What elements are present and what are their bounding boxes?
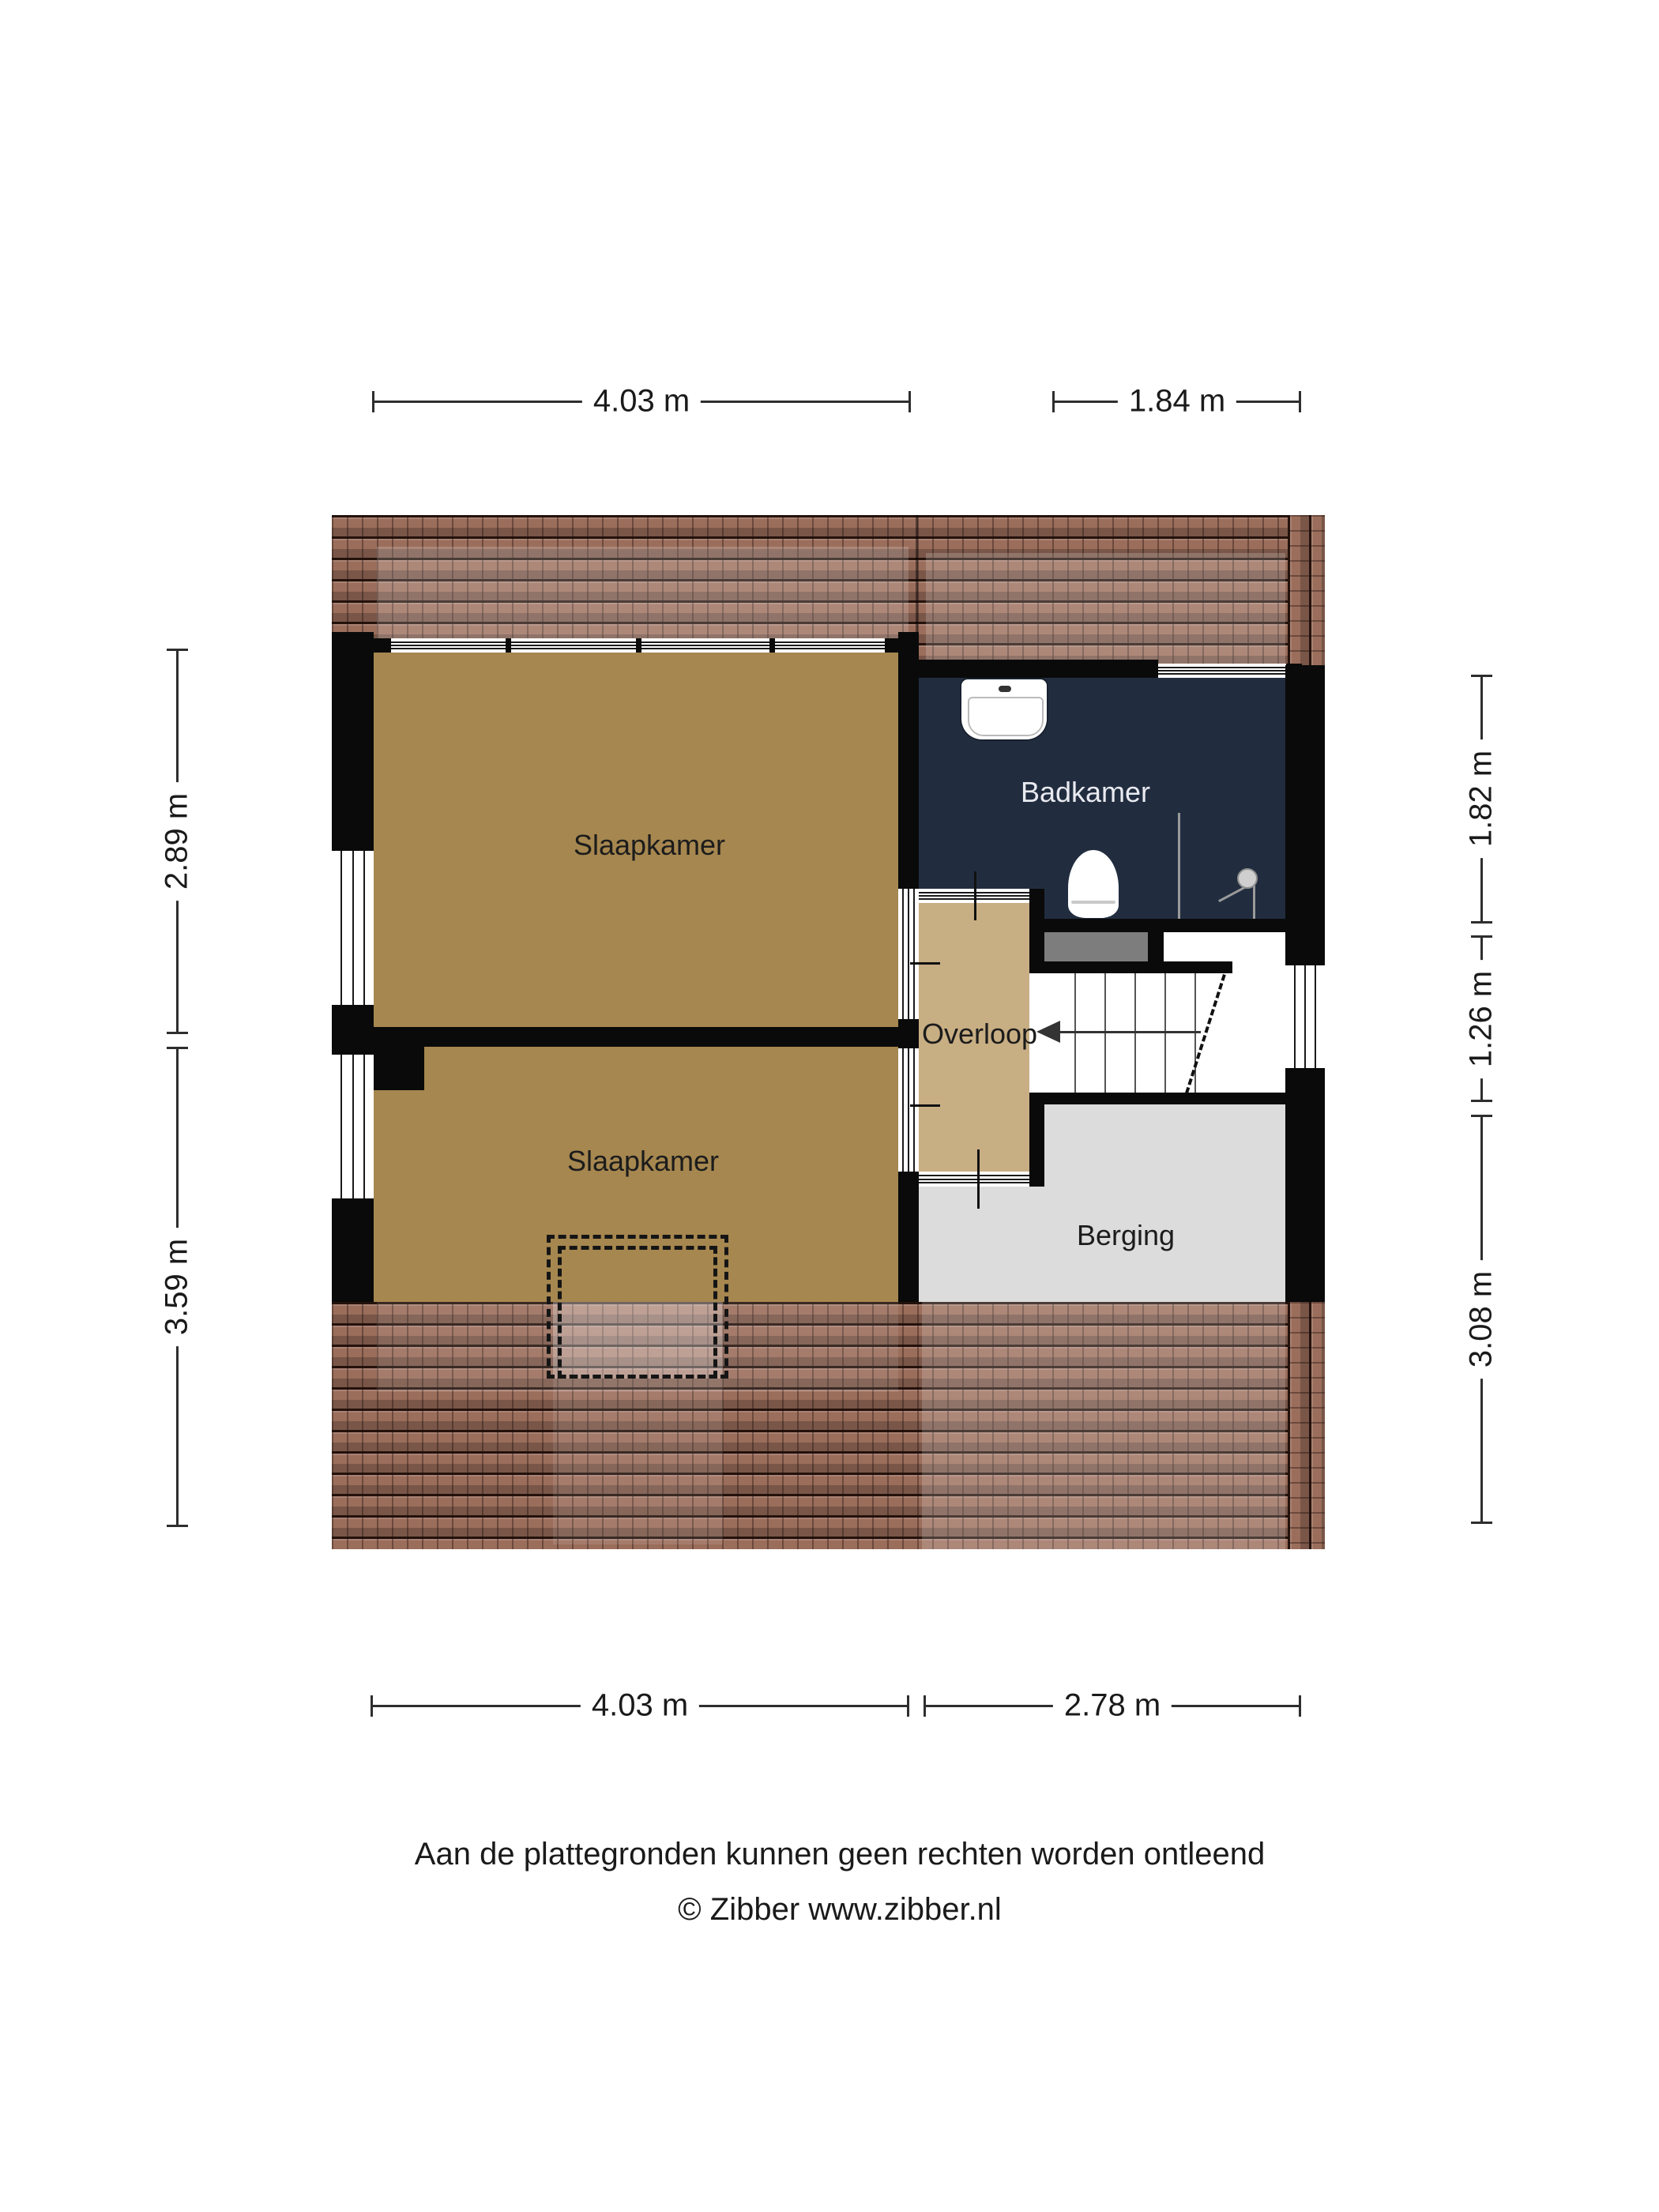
dimension-label-left-lower: 3.59 m	[160, 1228, 195, 1346]
wall-stairs-top	[1029, 961, 1232, 973]
room-berging-floor	[1044, 1104, 1285, 1302]
dim-tick	[924, 1695, 926, 1717]
dim-tick	[1471, 1100, 1492, 1102]
wall-top-left-cap	[374, 638, 391, 653]
dimension-label-top-left: 4.03 m	[582, 384, 701, 419]
dim-tick	[1299, 1695, 1301, 1717]
window-top-mullion-3	[769, 638, 775, 653]
shower-icon	[1178, 813, 1180, 919]
window-bathroom-top	[1158, 664, 1286, 678]
dimension-label-left-upper: 2.89 m	[160, 782, 195, 901]
dim-tick	[1052, 391, 1055, 412]
dimension-label-bottom-right: 2.78 m	[1053, 1688, 1172, 1724]
wall-bathroom-top	[919, 660, 1158, 678]
dim-tick	[1471, 1522, 1492, 1524]
glazed-strip-bottom-block	[898, 1172, 919, 1187]
sink-icon	[961, 679, 1047, 739]
dim-tick	[372, 391, 374, 412]
shower-stand	[1253, 885, 1255, 919]
label-overloop: Overloop	[922, 1018, 1037, 1051]
roof-overlay-top-left	[377, 547, 908, 640]
label-berging: Berging	[1077, 1219, 1175, 1252]
roof-side-strip-bottom	[1288, 1302, 1325, 1549]
window-landing-bottom	[919, 1172, 1029, 1187]
glazed-strip-junction-block	[898, 1019, 919, 1048]
dimension-label-right-3: 3.08 m	[1464, 1260, 1499, 1379]
dimension-label-top-right: 1.84 m	[1118, 384, 1236, 419]
roof-window-dashed-inner	[558, 1246, 717, 1379]
door-tick	[977, 1149, 980, 1209]
roof-overlay-roofwindow-faint	[553, 1379, 723, 1544]
wall-bedroom-bathroom	[898, 632, 919, 889]
dim-tick	[907, 1695, 909, 1717]
dim-tick	[1471, 1115, 1492, 1117]
window-top-mullion-2	[636, 638, 641, 653]
wall-bedroom-divider	[332, 1027, 898, 1047]
wall-landing-right-upper	[1029, 889, 1044, 973]
wall-right-lower	[1285, 1068, 1325, 1302]
door-tick	[910, 962, 940, 965]
sink-tap	[999, 686, 1011, 692]
dim-tick	[167, 1047, 188, 1049]
sink-basin-line	[968, 697, 1044, 736]
window-top-mullion-1	[506, 638, 511, 653]
wall-post-right-of-tray	[1148, 932, 1164, 961]
copyright-text: © Zibber www.zibber.nl	[678, 1892, 1002, 1928]
toilet-icon	[1068, 850, 1119, 918]
floorplan-page: Slaapkamer Slaapkamer Badkamer Overloop …	[0, 0, 1659, 2212]
window-left-upper	[332, 851, 374, 1005]
toilet-seat-line	[1071, 901, 1115, 904]
wall-left-upper	[332, 632, 374, 851]
dimension-label-bottom-left: 4.03 m	[581, 1688, 699, 1724]
wall-landing-right-lower	[1029, 1093, 1044, 1187]
label-slaapkamer-bottom: Slaapkamer	[567, 1145, 719, 1178]
stair-direction-arrow	[1036, 1021, 1060, 1043]
dim-tick	[371, 1695, 373, 1717]
window-right	[1285, 965, 1325, 1068]
dimension-label-right-2: 1.26 m	[1464, 960, 1499, 1078]
door-tick	[910, 1104, 940, 1107]
dim-tick	[1299, 391, 1301, 412]
wall-left-lower	[332, 1198, 374, 1302]
roof-side-strip-top	[1288, 515, 1325, 670]
wall-bedroom-berging	[898, 1187, 919, 1302]
wall-top-right-cap	[885, 638, 898, 653]
window-left-lower	[332, 1055, 374, 1198]
stair-direction-line	[1051, 1031, 1201, 1033]
label-slaapkamer-top: Slaapkamer	[574, 829, 725, 862]
dim-tick	[908, 391, 911, 412]
wall-stairs-bottom	[1029, 1093, 1288, 1104]
wall-right-upper	[1285, 665, 1325, 965]
dim-tick	[1471, 935, 1492, 938]
dim-tick	[167, 1525, 188, 1527]
room-berging-floor-ext	[919, 1187, 1044, 1302]
roof-overlay-top-right	[926, 553, 1285, 670]
dim-tick	[1471, 675, 1492, 677]
shower-head	[1237, 868, 1258, 889]
dim-tick	[167, 1032, 188, 1034]
roof-section-seam	[916, 515, 918, 640]
label-badkamer: Badkamer	[1021, 776, 1150, 809]
dim-tick	[1471, 921, 1492, 924]
dim-tick	[167, 649, 188, 651]
roof-overlay-bottom-right	[922, 1302, 1285, 1549]
shower-tray	[1044, 932, 1148, 961]
disclaimer-text: Aan de plattegronden kunnen geen rechten…	[415, 1837, 1265, 1872]
dimension-label-right-1: 1.82 m	[1464, 739, 1499, 858]
door-tick	[974, 871, 976, 920]
wall-divider-stub	[374, 1047, 424, 1090]
wall-bathroom-bottom	[1029, 919, 1288, 932]
